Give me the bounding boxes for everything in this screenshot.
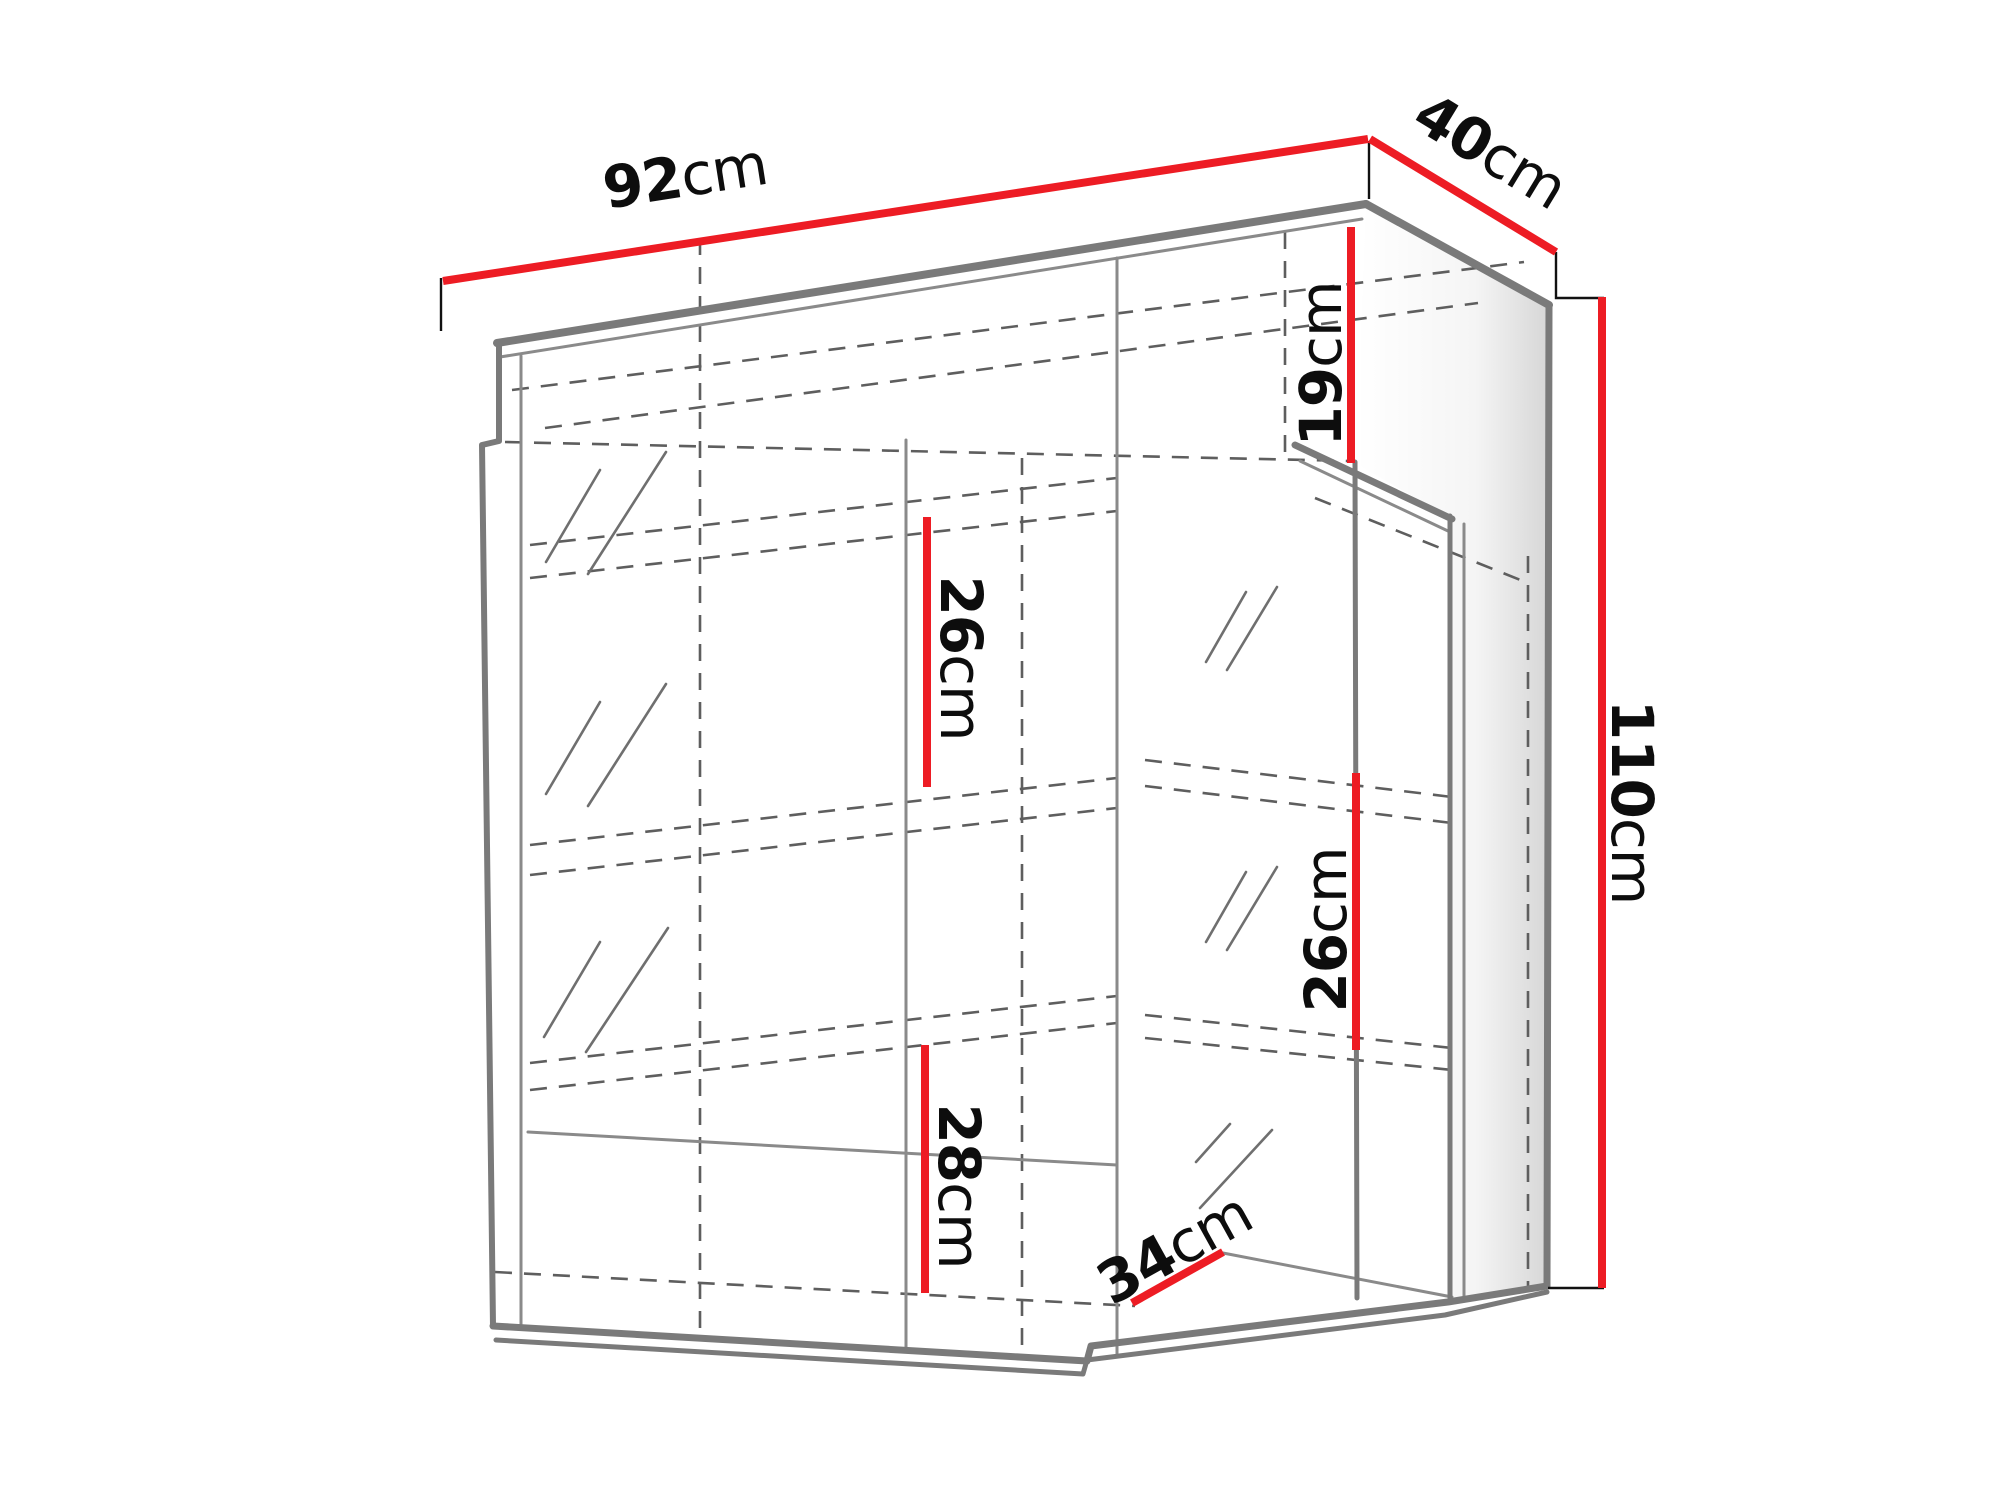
glass-slash-icon: [1227, 867, 1277, 950]
glass-slash-icon: [546, 702, 600, 794]
glass-slash-icon: [544, 942, 600, 1037]
shelf-3-front-edge: [530, 996, 1117, 1063]
shelf-3-back-edge: [530, 1023, 1117, 1090]
middle-shelf-gap-dimension-label: 26cm: [927, 575, 995, 740]
shelf-2-back-edge: [530, 808, 1117, 875]
diagram-canvas: 92cm 40cm 110cm 19cm 26cm 26cm 28cm 34cm: [0, 0, 2000, 1500]
height-dimension-label: 110cm: [1598, 700, 1666, 904]
top-front-edge: [497, 204, 1366, 343]
width-dimension-label: 92cm: [598, 130, 772, 223]
right-shelf-1-front-edge: [1145, 760, 1452, 797]
right-back-edge: [1547, 305, 1549, 1286]
bottom-shelf-depth-dimension-label: 34cm: [1086, 1179, 1263, 1319]
depth-height-elbow-tick: [1556, 252, 1604, 298]
depth-dimension-label: 40cm: [1402, 79, 1578, 223]
top-compartment-front-bottom-edge: [505, 442, 1350, 461]
right-shelf-gap-dimension-label: 26cm: [1292, 847, 1360, 1012]
shelf-1-front-edge: [530, 478, 1117, 545]
glass-slash-icon: [1227, 587, 1277, 670]
glass-slash-icon: [1206, 592, 1246, 662]
glass-slash-icon: [1206, 872, 1246, 942]
glass-slash-icon: [1196, 1124, 1230, 1162]
width-dimension-line: [443, 139, 1368, 281]
cabinet-dimension-diagram: 92cm 40cm 110cm 19cm 26cm 26cm 28cm 34cm: [0, 0, 2000, 1500]
left-edge: [482, 345, 499, 1326]
bottom-back-edge: [495, 1272, 1135, 1306]
right-box-bottom-inner-edge: [1223, 1253, 1452, 1297]
top-compartment-dimension-label: 19cm: [1287, 281, 1355, 446]
glass-slash-icon: [546, 470, 600, 562]
shelf-2-front-edge: [530, 778, 1117, 845]
lower-shelf-gap-dimension-label: 28cm: [925, 1103, 993, 1268]
right-shelf-2-front-edge: [1145, 1015, 1452, 1048]
shelf-1-back-edge: [530, 511, 1117, 578]
bottom-panel-inner-edge: [528, 1132, 1117, 1165]
